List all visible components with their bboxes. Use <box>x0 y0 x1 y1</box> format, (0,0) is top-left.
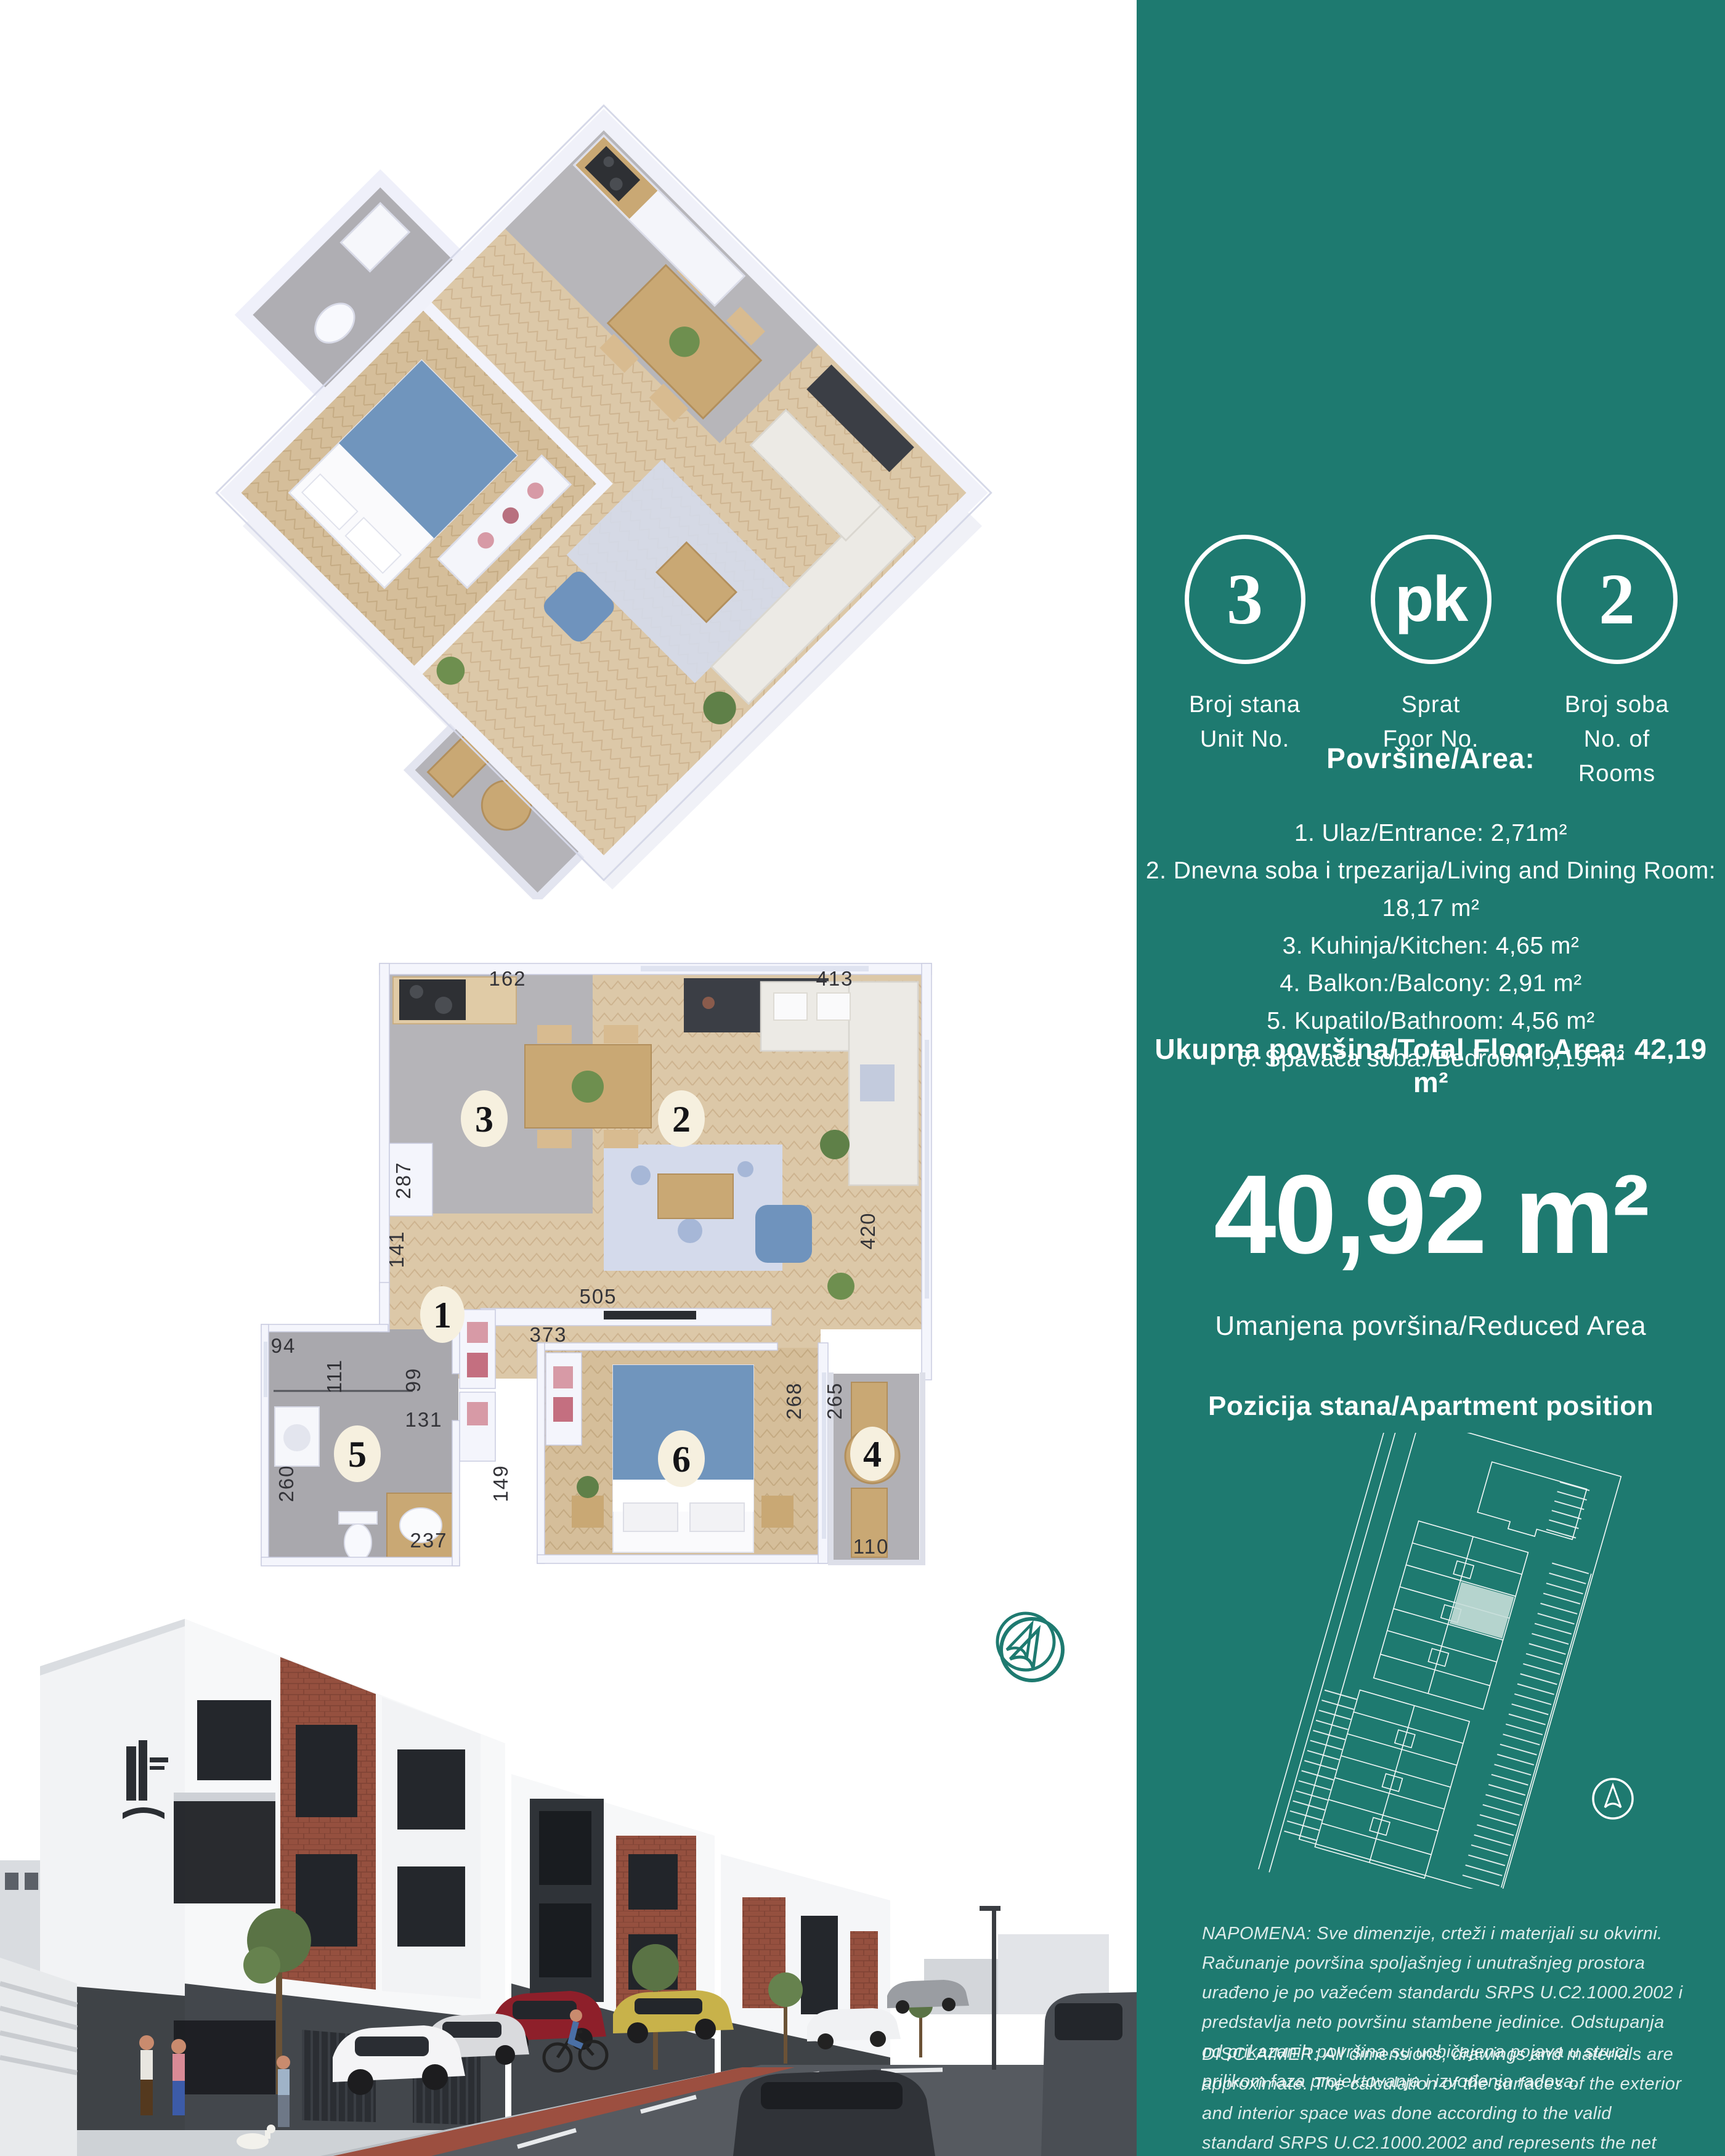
svg-text:6: 6 <box>672 1439 691 1480</box>
svg-text:4: 4 <box>863 1434 882 1475</box>
reduced-area-label: Umanjena površina/Reduced Area <box>1137 1311 1725 1342</box>
svg-text:131: 131 <box>405 1408 442 1431</box>
svg-text:287: 287 <box>392 1161 415 1199</box>
floor-plan-2d: 162 413 287 141 420 505 373 94 111 99 13… <box>259 941 936 1585</box>
badge-circle: 2 <box>1557 535 1678 664</box>
svg-text:3: 3 <box>475 1099 493 1140</box>
plan-armchair <box>755 1205 812 1263</box>
svg-text:141: 141 <box>385 1230 408 1268</box>
building-street-render <box>0 1589 1137 2156</box>
svg-text:94: 94 <box>271 1334 296 1357</box>
svg-text:268: 268 <box>782 1382 805 1419</box>
badge-label-sr: Sprat <box>1383 687 1479 722</box>
svg-text:373: 373 <box>529 1323 567 1346</box>
svg-text:110: 110 <box>853 1535 890 1558</box>
apartment-position-label: Pozicija stana/Apartment position <box>1137 1391 1725 1422</box>
floor-number-value: pk <box>1395 567 1467 631</box>
svg-text:162: 162 <box>489 967 526 990</box>
svg-text:1: 1 <box>433 1295 452 1335</box>
svg-text:111: 111 <box>323 1359 346 1393</box>
area-line-living: 2. Dnevna soba i trpezarija/Living and D… <box>1137 852 1725 927</box>
svg-text:149: 149 <box>489 1464 512 1502</box>
area-line-kitchen: 3. Kuhinja/Kitchen: 4,65 m² <box>1137 927 1725 965</box>
svg-text:420: 420 <box>856 1212 879 1249</box>
area-line-entrance: 1. Ulaz/Entrance: 2,71m² <box>1137 814 1725 852</box>
badge-circle: 3 <box>1185 535 1305 664</box>
room-count-value: 2 <box>1599 563 1635 636</box>
compass-arrow-icon <box>997 1613 1054 1670</box>
reduced-area-value: 40,92 m² <box>1137 1158 1725 1270</box>
svg-text:99: 99 <box>402 1368 424 1393</box>
total-floor-area: Ukupna površina/Total Floor Area: 42,19 … <box>1137 1032 1725 1099</box>
svg-text:265: 265 <box>823 1382 846 1419</box>
svg-text:237: 237 <box>410 1529 447 1552</box>
svg-text:505: 505 <box>579 1285 617 1308</box>
info-panel: 3 Broj stana Unit No. pk Sprat Foor No. <box>1137 0 1725 2156</box>
areas-heading: Površine/Area: <box>1137 742 1725 775</box>
svg-text:2: 2 <box>672 1099 691 1140</box>
unit-number-value: 3 <box>1227 563 1263 636</box>
svg-text:5: 5 <box>348 1434 367 1475</box>
brochure-sheet: 162 413 287 141 420 505 373 94 111 99 13… <box>0 0 1725 2156</box>
badge-label-sr: Broj soba <box>1546 687 1688 722</box>
badge-label-sr: Broj stana <box>1189 687 1301 722</box>
badge-circle: pk <box>1371 535 1492 664</box>
north-arrow-icon <box>1589 1775 1636 1822</box>
site-plan-drawing <box>1251 1433 1645 1889</box>
area-line-balcony: 4. Balkon:/Balcony: 2,91 m² <box>1137 965 1725 1002</box>
svg-text:413: 413 <box>816 967 853 990</box>
svg-text:260: 260 <box>275 1464 298 1502</box>
disclaimer-text: DISCLAIMER: All dimensions, drawings and… <box>1202 2040 1686 2156</box>
isometric-apartment-render <box>154 37 1053 899</box>
